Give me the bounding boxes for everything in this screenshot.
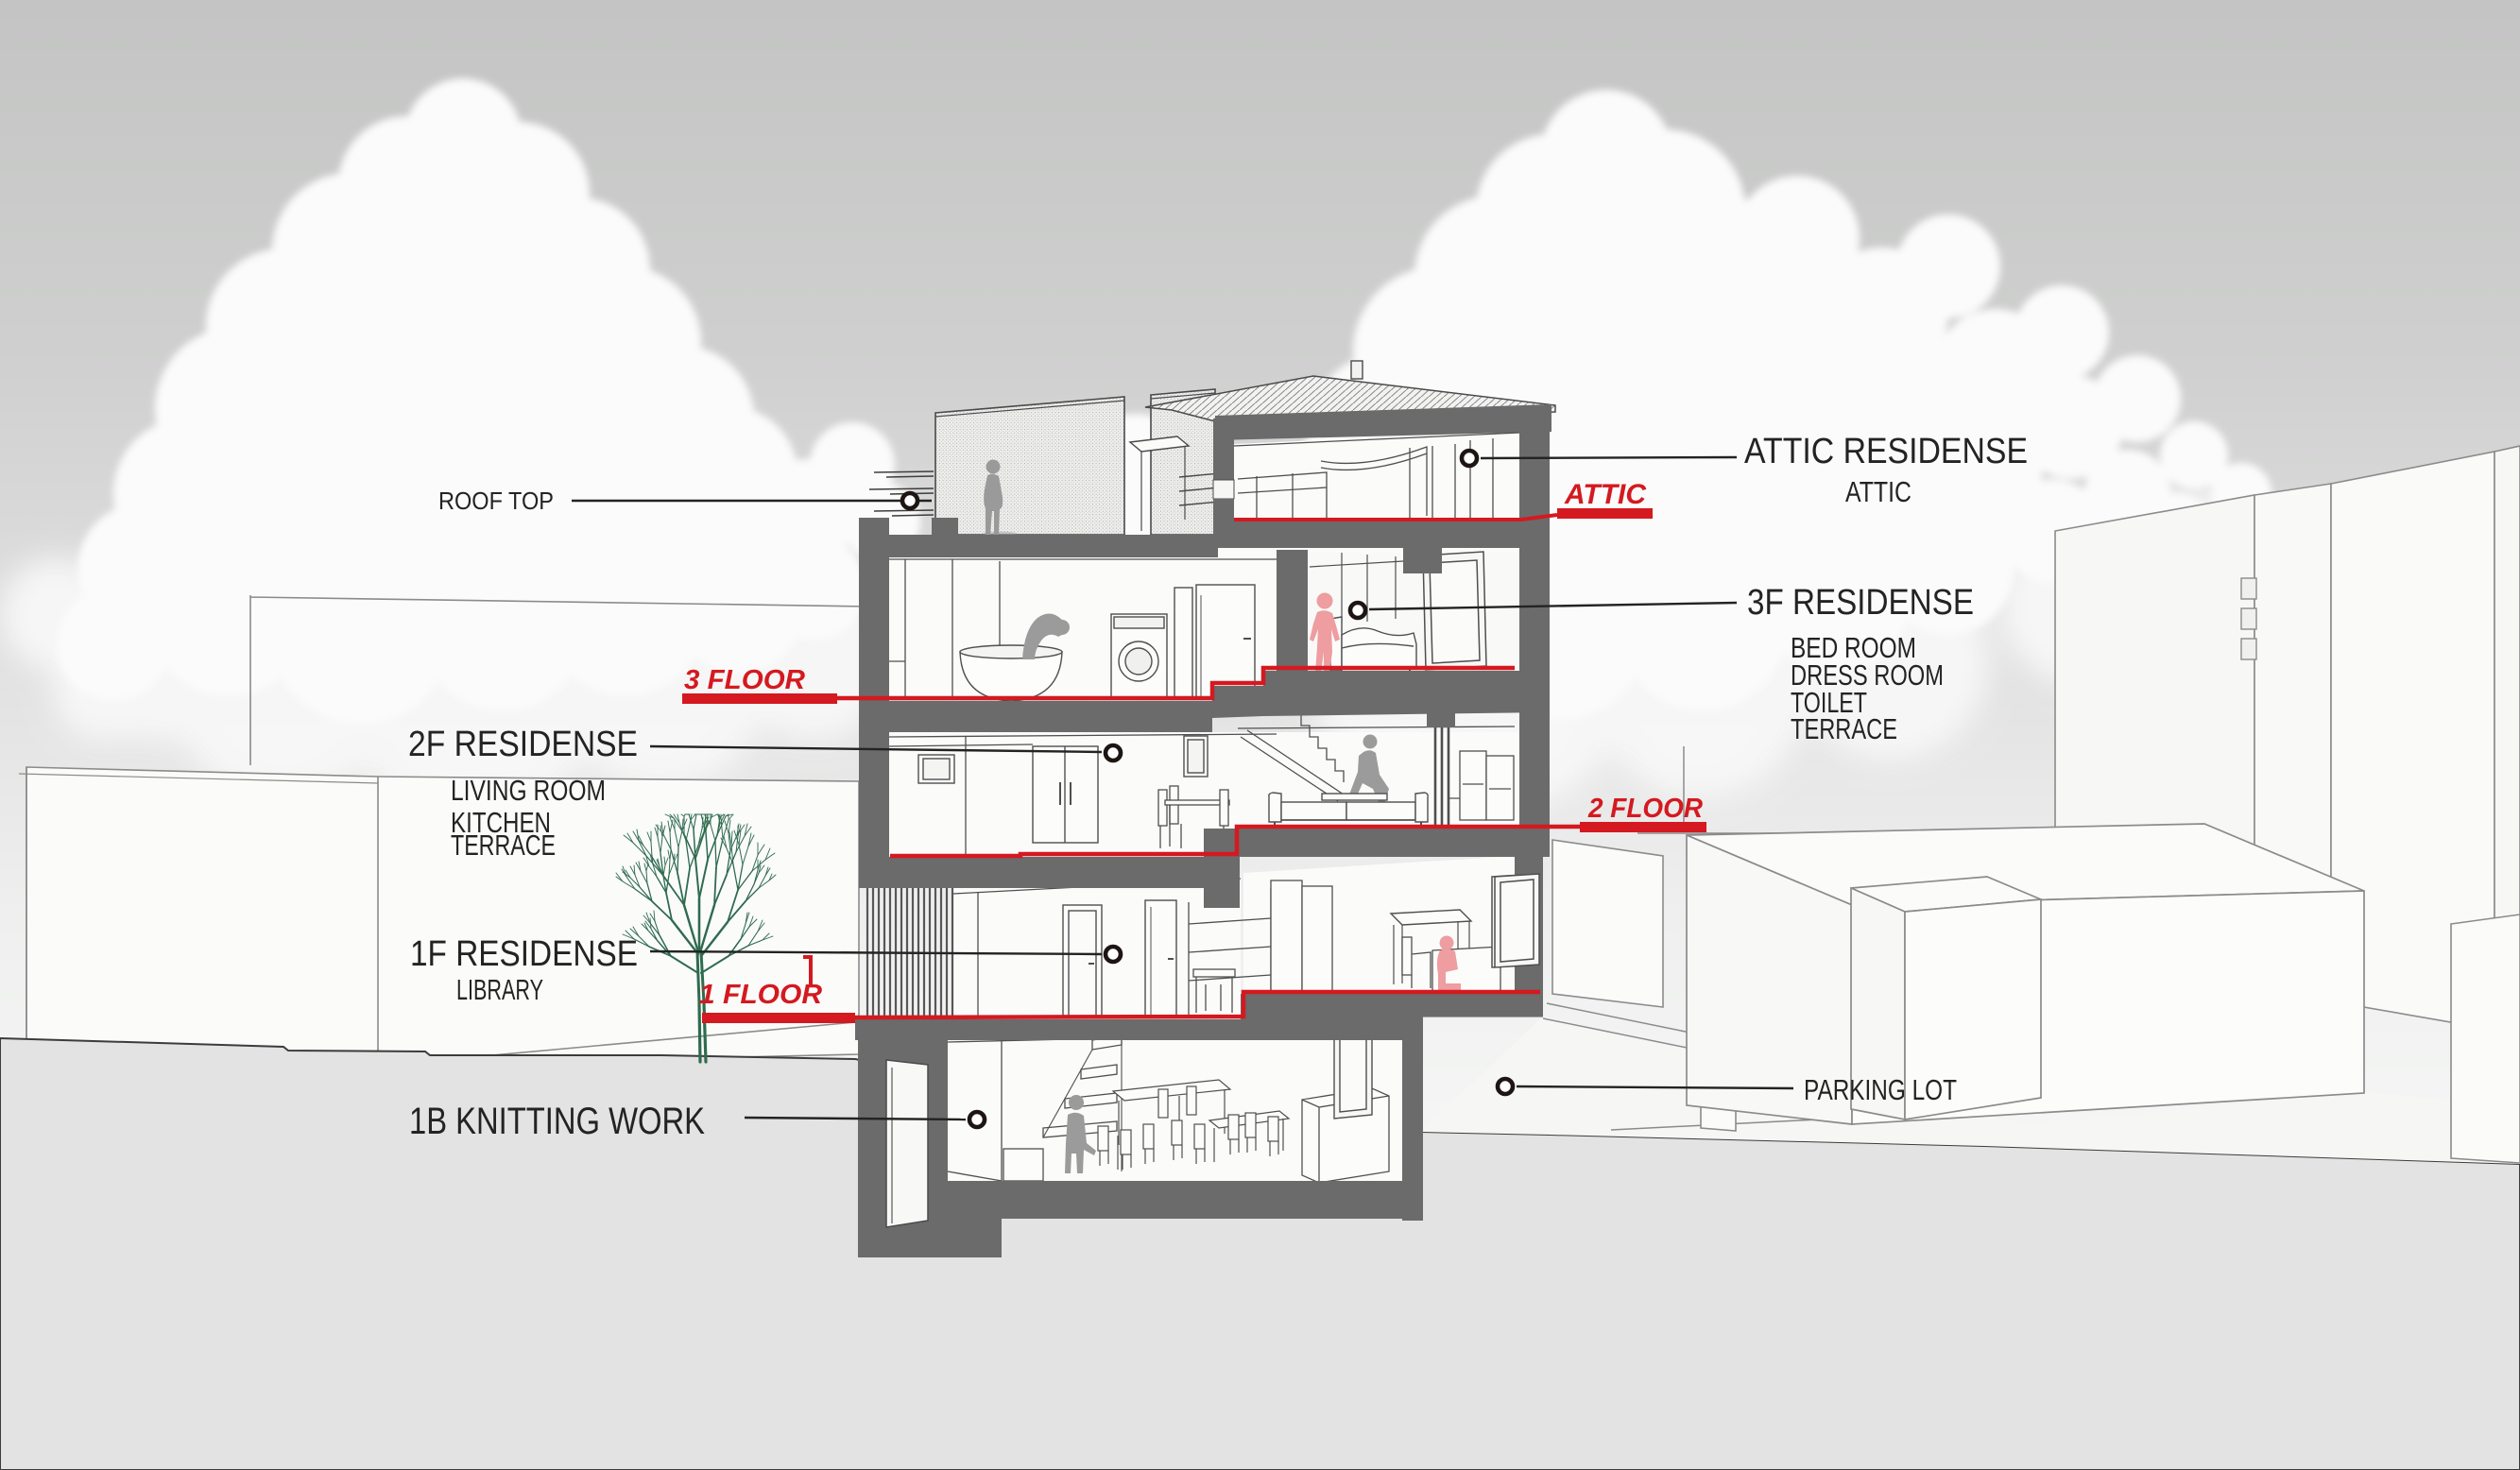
svg-text:3 FLOOR: 3 FLOOR — [684, 665, 805, 695]
svg-text:TERRACE: TERRACE — [1791, 712, 1897, 745]
svg-text:PARKING LOT: PARKING LOT — [1804, 1073, 1957, 1106]
svg-text:3F RESIDENSE: 3F RESIDENSE — [1747, 583, 1974, 623]
svg-text:ATTIC RESIDENSE: ATTIC RESIDENSE — [1744, 432, 2028, 471]
svg-text:LIVING ROOM: LIVING ROOM — [451, 774, 606, 807]
svg-text:2 FLOOR: 2 FLOOR — [1587, 794, 1703, 824]
svg-text:ATTIC: ATTIC — [1564, 479, 1647, 510]
svg-text:2F RESIDENSE: 2F RESIDENSE — [408, 725, 638, 764]
svg-text:1 FLOOR: 1 FLOOR — [699, 980, 822, 1010]
svg-text:TERRACE: TERRACE — [451, 829, 556, 862]
svg-text:ATTIC: ATTIC — [1845, 475, 1911, 508]
svg-text:1B KNITTING WORK: 1B KNITTING WORK — [409, 1101, 705, 1142]
svg-text:ROOF TOP: ROOF TOP — [438, 487, 554, 515]
svg-text:1F RESIDENSE: 1F RESIDENSE — [410, 934, 638, 974]
svg-text:LIBRARY: LIBRARY — [456, 973, 543, 1006]
